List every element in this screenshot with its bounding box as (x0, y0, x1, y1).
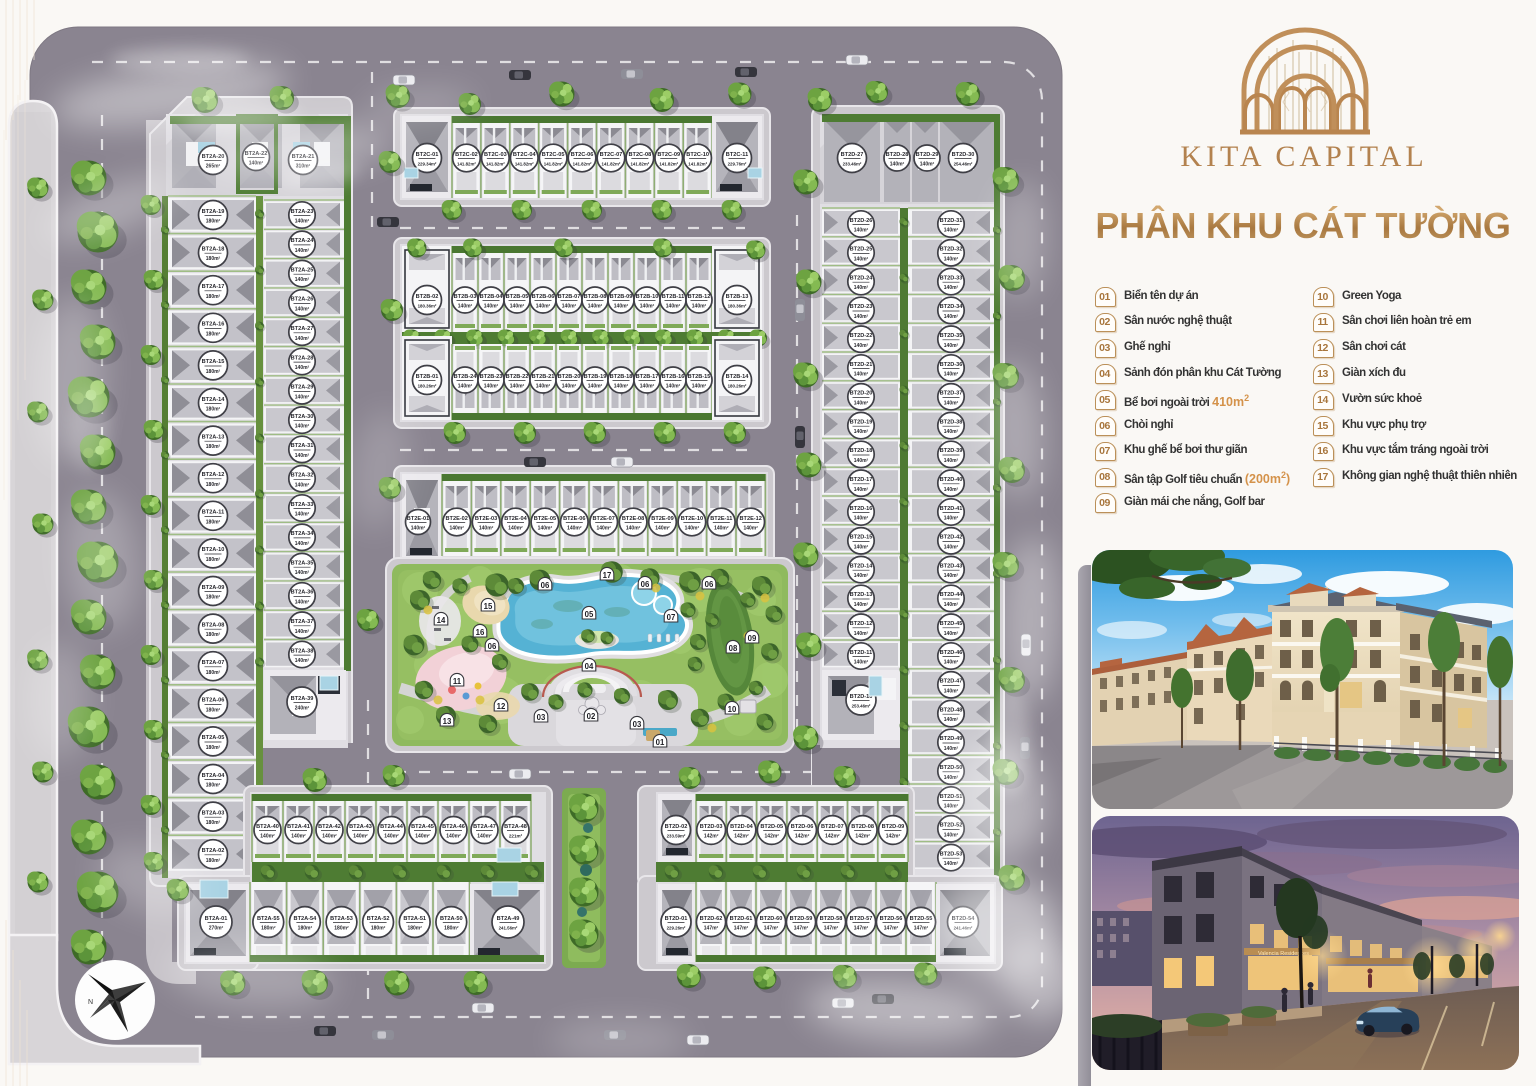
svg-text:BT2D-07: BT2D-07 (821, 824, 844, 830)
svg-text:140m²: 140m² (536, 384, 551, 390)
svg-text:BT2A-19: BT2A-19 (202, 209, 225, 215)
svg-text:BT2B-12: BT2B-12 (688, 294, 711, 300)
svg-text:BT2B-10: BT2B-10 (636, 294, 659, 300)
svg-text:BT2D-05: BT2D-05 (760, 824, 783, 830)
svg-text:BT2C-10: BT2C-10 (686, 152, 709, 158)
svg-text:05: 05 (585, 610, 594, 619)
svg-text:140m²: 140m² (291, 834, 306, 840)
svg-text:13: 13 (443, 717, 452, 726)
svg-text:BT2B-11: BT2B-11 (662, 294, 684, 300)
svg-text:BT2B-01: BT2B-01 (416, 374, 439, 380)
svg-text:142m²: 142m² (825, 834, 840, 840)
svg-text:BT2A-41: BT2A-41 (287, 824, 310, 830)
svg-text:03: 03 (633, 720, 642, 729)
svg-text:BT2D-30: BT2D-30 (952, 152, 975, 158)
svg-text:BT2D-61: BT2D-61 (730, 916, 753, 922)
svg-text:BT2D-18: BT2D-18 (850, 448, 873, 454)
svg-text:BT2D-14: BT2D-14 (850, 563, 874, 569)
svg-text:BT2C-01: BT2C-01 (416, 152, 439, 158)
svg-text:BT2A-02: BT2A-02 (202, 848, 225, 854)
svg-text:BT2B-17: BT2B-17 (636, 374, 659, 380)
svg-text:140m²: 140m² (944, 343, 959, 349)
svg-text:140m²: 140m² (854, 256, 869, 262)
svg-text:BT2D-44: BT2D-44 (940, 592, 964, 598)
svg-text:BT2E-09: BT2E-09 (651, 516, 673, 522)
svg-text:BT2E-06: BT2E-06 (563, 516, 585, 522)
svg-text:147m²: 147m² (854, 926, 869, 932)
svg-text:142m²: 142m² (704, 834, 719, 840)
svg-text:BT2D-24: BT2D-24 (850, 275, 874, 281)
svg-text:140m²: 140m² (944, 861, 959, 867)
svg-text:BT2B-16: BT2B-16 (662, 374, 685, 380)
svg-text:147m²: 147m² (734, 926, 749, 932)
svg-text:10: 10 (728, 705, 737, 714)
svg-text:140m²: 140m² (295, 570, 310, 576)
svg-text:08: 08 (729, 644, 738, 653)
svg-text:BT2A-54: BT2A-54 (294, 916, 318, 922)
svg-text:140m²: 140m² (854, 429, 869, 435)
svg-text:140m²: 140m² (944, 660, 959, 666)
svg-text:140m²: 140m² (536, 304, 551, 310)
svg-text:BT2B-05: BT2B-05 (506, 294, 529, 300)
svg-text:BT2D-46: BT2D-46 (940, 650, 963, 656)
svg-text:BT2D-57: BT2D-57 (850, 916, 873, 922)
svg-text:BT2C-11: BT2C-11 (726, 152, 748, 158)
svg-text:140m²: 140m² (944, 372, 959, 378)
svg-text:141.82m²: 141.82m² (630, 162, 649, 167)
svg-text:BT2C-03: BT2C-03 (484, 152, 507, 158)
svg-text:BT2A-03: BT2A-03 (202, 810, 225, 816)
svg-text:BT2D-09: BT2D-09 (882, 824, 905, 830)
svg-text:06: 06 (541, 581, 550, 590)
svg-text:BT2E-07: BT2E-07 (593, 516, 615, 522)
svg-text:BT2D-62: BT2D-62 (700, 916, 723, 922)
svg-text:142m²: 142m² (886, 834, 901, 840)
svg-text:06: 06 (488, 642, 497, 651)
svg-text:180.36m²: 180.36m² (418, 304, 437, 309)
svg-text:180m²: 180m² (334, 926, 349, 932)
svg-text:140m²: 140m² (295, 277, 310, 283)
svg-text:140m²: 140m² (944, 631, 959, 637)
svg-text:BT2D-37: BT2D-37 (940, 391, 963, 397)
svg-text:140m²: 140m² (295, 219, 310, 225)
svg-text:BT2A-29: BT2A-29 (291, 385, 314, 391)
svg-text:140m²: 140m² (890, 162, 905, 168)
svg-text:140m²: 140m² (944, 256, 959, 262)
svg-text:142m²: 142m² (855, 834, 870, 840)
svg-text:BT2B-02: BT2B-02 (416, 294, 439, 300)
svg-text:BT2A-51: BT2A-51 (403, 916, 426, 922)
svg-text:BT2B-09: BT2B-09 (610, 294, 633, 300)
svg-text:BT2D-29: BT2D-29 (916, 152, 939, 158)
svg-text:BT2D-32: BT2D-32 (940, 247, 963, 253)
svg-text:BT2E-12: BT2E-12 (740, 516, 762, 522)
svg-text:BT2A-28: BT2A-28 (291, 355, 314, 361)
svg-text:BT2A-05: BT2A-05 (202, 735, 225, 741)
svg-text:140m²: 140m² (484, 384, 499, 390)
svg-text:06: 06 (641, 580, 650, 589)
svg-text:15: 15 (484, 602, 493, 611)
svg-text:BT2D-35: BT2D-35 (940, 333, 963, 339)
svg-text:140m²: 140m² (295, 365, 310, 371)
svg-text:229.26m²: 229.26m² (667, 926, 686, 931)
svg-text:BT2A-26: BT2A-26 (291, 297, 314, 303)
svg-text:BT2A-40: BT2A-40 (256, 824, 279, 830)
svg-text:140m²: 140m² (384, 834, 399, 840)
svg-text:BT2D-01: BT2D-01 (665, 916, 688, 922)
svg-text:03: 03 (537, 713, 546, 722)
svg-text:BT2B-03: BT2B-03 (454, 294, 477, 300)
svg-text:140m²: 140m² (260, 834, 275, 840)
svg-text:180m²: 180m² (206, 820, 221, 826)
svg-text:180m²: 180m² (206, 783, 221, 789)
svg-text:BT2B-06: BT2B-06 (532, 294, 555, 300)
svg-text:BT2A-23: BT2A-23 (291, 209, 314, 215)
svg-text:140m²: 140m² (854, 285, 869, 291)
svg-text:141.82m²: 141.82m² (457, 162, 476, 167)
svg-text:BT2D-60: BT2D-60 (760, 916, 783, 922)
svg-text:BT2A-30: BT2A-30 (291, 414, 314, 420)
svg-text:140m²: 140m² (854, 544, 869, 550)
svg-text:BT2D-20: BT2D-20 (850, 391, 873, 397)
svg-text:BT2D-40: BT2D-40 (940, 477, 963, 483)
svg-text:140m²: 140m² (479, 526, 494, 532)
svg-text:140m²: 140m² (854, 314, 869, 320)
svg-text:BT2A-33: BT2A-33 (291, 502, 314, 508)
svg-text:140m²: 140m² (944, 285, 959, 291)
svg-text:BT2D-21: BT2D-21 (850, 362, 873, 368)
svg-text:BT2D-16: BT2D-16 (850, 506, 873, 512)
svg-text:BT2D-42: BT2D-42 (940, 535, 963, 541)
svg-text:BT2A-14: BT2A-14 (202, 397, 226, 403)
svg-text:180.36m²: 180.36m² (728, 304, 747, 309)
svg-text:BT2E-10: BT2E-10 (681, 516, 703, 522)
svg-text:140m²: 140m² (854, 516, 869, 522)
svg-text:140m²: 140m² (854, 573, 869, 579)
svg-text:BT2A-15: BT2A-15 (202, 359, 225, 365)
svg-text:BT2A-39: BT2A-39 (291, 696, 314, 702)
svg-text:BT2E-05: BT2E-05 (534, 516, 556, 522)
svg-text:140m²: 140m² (854, 487, 869, 493)
svg-text:BT2A-16: BT2A-16 (202, 322, 225, 328)
svg-text:140m²: 140m² (295, 336, 310, 342)
svg-text:BT2B-04: BT2B-04 (480, 294, 504, 300)
svg-text:140m²: 140m² (944, 602, 959, 608)
svg-text:BT2B-08: BT2B-08 (584, 294, 607, 300)
svg-text:BT2D-52: BT2D-52 (940, 823, 963, 829)
svg-text:BT2D-39: BT2D-39 (940, 448, 963, 454)
svg-text:BT2D-53: BT2D-53 (940, 851, 963, 857)
svg-text:140m²: 140m² (944, 458, 959, 464)
svg-text:17: 17 (603, 571, 612, 580)
svg-text:BT2D-22: BT2D-22 (850, 333, 873, 339)
svg-text:233.59m²: 233.59m² (667, 834, 686, 839)
svg-text:BT2C-08: BT2C-08 (628, 152, 651, 158)
svg-text:140m²: 140m² (666, 384, 681, 390)
svg-text:140m²: 140m² (295, 600, 310, 606)
svg-text:140m²: 140m² (295, 512, 310, 518)
svg-text:140m²: 140m² (477, 834, 492, 840)
svg-text:254.46m²: 254.46m² (954, 162, 973, 167)
svg-text:140m²: 140m² (614, 304, 629, 310)
svg-text:140m²: 140m² (588, 384, 603, 390)
svg-text:140m²: 140m² (854, 400, 869, 406)
svg-text:241.56m²: 241.56m² (499, 926, 518, 931)
svg-text:140m²: 140m² (854, 343, 869, 349)
svg-text:140m²: 140m² (640, 304, 655, 310)
svg-text:BT2A-38: BT2A-38 (291, 648, 314, 654)
svg-text:140m²: 140m² (508, 526, 523, 532)
svg-text:180m²: 180m² (206, 294, 221, 300)
svg-text:180m²: 180m² (206, 482, 221, 488)
svg-text:180m²: 180m² (206, 369, 221, 375)
svg-text:140m²: 140m² (944, 832, 959, 838)
svg-text:147m²: 147m² (764, 926, 779, 932)
svg-text:BT2A-48: BT2A-48 (504, 824, 527, 830)
svg-text:BT2A-35: BT2A-35 (291, 560, 314, 566)
svg-text:N: N (88, 999, 93, 1006)
svg-text:233.46m²: 233.46m² (843, 162, 862, 167)
svg-text:140m²: 140m² (944, 573, 959, 579)
svg-text:BT2D-45: BT2D-45 (940, 621, 963, 627)
svg-text:140m²: 140m² (685, 526, 700, 532)
svg-text:BT2C-06: BT2C-06 (571, 152, 594, 158)
svg-text:BT2C-05: BT2C-05 (542, 152, 565, 158)
svg-text:229.76m²: 229.76m² (728, 162, 747, 167)
svg-text:BT2D-17: BT2D-17 (850, 477, 873, 483)
svg-text:140m²: 140m² (944, 314, 959, 320)
svg-text:BT2A-17: BT2A-17 (202, 284, 225, 290)
svg-text:BT2E-02: BT2E-02 (446, 516, 468, 522)
svg-text:BT2D-41: BT2D-41 (940, 506, 963, 512)
svg-text:BT2B-14: BT2B-14 (726, 374, 750, 380)
svg-text:141.82m²: 141.82m² (544, 162, 563, 167)
svg-text:BT2A-18: BT2A-18 (202, 246, 225, 252)
svg-text:140m²: 140m² (295, 453, 310, 459)
svg-text:16: 16 (476, 628, 485, 637)
svg-text:BT2C-07: BT2C-07 (600, 152, 623, 158)
svg-text:BT2D-26: BT2D-26 (850, 218, 873, 224)
svg-text:140m²: 140m² (295, 394, 310, 400)
svg-text:BT2A-04: BT2A-04 (202, 773, 226, 779)
svg-text:140m²: 140m² (692, 304, 707, 310)
svg-text:BT2B-20: BT2B-20 (558, 374, 581, 380)
svg-text:180m²: 180m² (371, 926, 386, 932)
svg-text:BT2A-09: BT2A-09 (202, 585, 225, 591)
svg-text:140m²: 140m² (567, 526, 582, 532)
svg-text:BT2A-49: BT2A-49 (497, 916, 520, 922)
svg-text:140m²: 140m² (588, 304, 603, 310)
svg-text:180m²: 180m² (298, 926, 313, 932)
svg-text:140m²: 140m² (944, 544, 959, 550)
svg-text:BT2D-23: BT2D-23 (850, 304, 873, 310)
svg-text:140m²: 140m² (666, 304, 681, 310)
svg-text:140m²: 140m² (626, 526, 641, 532)
svg-text:BT2A-37: BT2A-37 (291, 619, 314, 625)
svg-text:BT2D-47: BT2D-47 (940, 679, 963, 685)
svg-text:BT2B-19: BT2B-19 (584, 374, 607, 380)
svg-text:BT2A-44: BT2A-44 (380, 824, 404, 830)
svg-text:140m²: 140m² (562, 384, 577, 390)
svg-text:BT2A-10: BT2A-10 (202, 547, 225, 553)
svg-text:BT2A-53: BT2A-53 (330, 916, 353, 922)
svg-text:BT2D-31: BT2D-31 (940, 218, 963, 224)
svg-text:140m²: 140m² (538, 526, 553, 532)
svg-text:140m²: 140m² (743, 526, 758, 532)
svg-text:BT2D-03: BT2D-03 (700, 824, 723, 830)
svg-text:140m²: 140m² (854, 602, 869, 608)
svg-text:11: 11 (453, 677, 462, 686)
svg-text:140m²: 140m² (920, 162, 935, 168)
svg-text:BT2A-47: BT2A-47 (473, 824, 496, 830)
svg-text:BT2B-07: BT2B-07 (558, 294, 581, 300)
svg-text:240m²: 240m² (295, 706, 310, 712)
svg-text:140m²: 140m² (415, 834, 430, 840)
svg-text:140m²: 140m² (655, 526, 670, 532)
svg-text:BT2D-48: BT2D-48 (940, 707, 963, 713)
svg-text:180m²: 180m² (206, 407, 221, 413)
svg-text:BT2A-06: BT2A-06 (202, 698, 225, 704)
svg-text:140m²: 140m² (295, 541, 310, 547)
svg-text:BT2A-12: BT2A-12 (202, 472, 225, 478)
svg-text:140m²: 140m² (614, 384, 629, 390)
svg-text:01: 01 (656, 738, 665, 747)
svg-text:BT2D-36: BT2D-36 (940, 362, 963, 368)
svg-text:180m²: 180m² (206, 670, 221, 676)
svg-text:BT2C-02: BT2C-02 (455, 152, 478, 158)
svg-text:BT2C-04: BT2C-04 (513, 152, 537, 158)
svg-text:BT2A-24: BT2A-24 (291, 238, 315, 244)
svg-text:141.82m²: 141.82m² (515, 162, 534, 167)
svg-text:140m²: 140m² (854, 631, 869, 637)
svg-text:04: 04 (585, 662, 594, 671)
svg-text:BT2C-09: BT2C-09 (657, 152, 680, 158)
svg-text:180m²: 180m² (206, 632, 221, 638)
svg-text:147m²: 147m² (704, 926, 719, 932)
svg-text:140m²: 140m² (322, 834, 337, 840)
svg-text:142m²: 142m² (795, 834, 810, 840)
svg-text:180m²: 180m² (407, 926, 422, 932)
svg-text:BT2D-33: BT2D-33 (940, 275, 963, 281)
svg-text:140m²: 140m² (510, 384, 525, 390)
svg-text:141.82m²: 141.82m² (486, 162, 505, 167)
svg-text:147m²: 147m² (884, 926, 899, 932)
svg-text:BT2D-08: BT2D-08 (851, 824, 874, 830)
svg-text:BT2D-49: BT2D-49 (940, 736, 963, 742)
svg-text:BT2B-18: BT2B-18 (610, 374, 633, 380)
svg-text:BT2E-04: BT2E-04 (504, 516, 527, 522)
svg-text:140m²: 140m² (854, 458, 869, 464)
svg-text:BT2B-23: BT2B-23 (480, 374, 503, 380)
svg-text:BT2D-38: BT2D-38 (940, 419, 963, 425)
svg-text:BT2D-19: BT2D-19 (850, 419, 873, 425)
svg-text:BT2B-24: BT2B-24 (454, 374, 478, 380)
svg-text:BT2A-01: BT2A-01 (205, 916, 228, 922)
svg-text:BT2A-13: BT2A-13 (202, 434, 225, 440)
svg-text:BT2D-12: BT2D-12 (850, 621, 873, 627)
svg-text:180m²: 180m² (261, 926, 276, 932)
svg-text:BT2A-45: BT2A-45 (411, 824, 434, 830)
svg-text:09: 09 (748, 634, 757, 643)
svg-text:140m²: 140m² (714, 526, 729, 532)
svg-text:180.26m²: 180.26m² (728, 384, 747, 389)
svg-text:BT2E-11: BT2E-11 (710, 516, 732, 522)
svg-text:BT2D-27: BT2D-27 (841, 152, 864, 158)
svg-text:BT2D-02: BT2D-02 (665, 824, 688, 830)
svg-text:142m²: 142m² (734, 834, 749, 840)
svg-text:BT2A-32: BT2A-32 (291, 473, 314, 479)
svg-text:180m²: 180m² (206, 745, 221, 751)
svg-text:BT2E-08: BT2E-08 (622, 516, 644, 522)
svg-text:180m²: 180m² (206, 707, 221, 713)
svg-text:270m²: 270m² (209, 926, 224, 932)
svg-text:BT2D-06: BT2D-06 (791, 824, 814, 830)
svg-text:140m²: 140m² (295, 248, 310, 254)
svg-text:147m²: 147m² (914, 926, 929, 932)
svg-text:141.82m²: 141.82m² (659, 162, 678, 167)
svg-text:140m²: 140m² (446, 834, 461, 840)
svg-text:BT2D-58: BT2D-58 (820, 916, 843, 922)
svg-text:BT2E-01: BT2E-01 (407, 516, 429, 522)
svg-text:BT2D-28: BT2D-28 (886, 152, 909, 158)
svg-text:180m²: 180m² (206, 256, 221, 262)
svg-text:BT2A-34: BT2A-34 (291, 531, 315, 537)
svg-text:BT2D-55: BT2D-55 (910, 916, 933, 922)
svg-text:140m²: 140m² (295, 307, 310, 313)
svg-text:140m²: 140m² (944, 400, 959, 406)
svg-text:140m²: 140m² (944, 487, 959, 493)
svg-text:140m²: 140m² (944, 429, 959, 435)
svg-text:BT2D-15: BT2D-15 (850, 535, 873, 541)
svg-text:140m²: 140m² (458, 384, 473, 390)
svg-text:140m²: 140m² (295, 629, 310, 635)
svg-text:140m²: 140m² (484, 304, 499, 310)
svg-text:BT2A-36: BT2A-36 (291, 590, 314, 596)
svg-text:140m²: 140m² (944, 746, 959, 752)
svg-text:180m²: 180m² (206, 444, 221, 450)
svg-text:140m²: 140m² (295, 658, 310, 664)
svg-text:140m²: 140m² (353, 834, 368, 840)
svg-text:BT2B-21: BT2B-21 (532, 374, 555, 380)
svg-text:BT2A-46: BT2A-46 (442, 824, 465, 830)
svg-text:BT2D-43: BT2D-43 (940, 563, 963, 569)
svg-text:180m²: 180m² (206, 331, 221, 337)
svg-text:BT2B-22: BT2B-22 (506, 374, 529, 380)
svg-text:BT2B-13: BT2B-13 (726, 294, 749, 300)
svg-text:180m²: 180m² (206, 557, 221, 563)
svg-text:147m²: 147m² (824, 926, 839, 932)
svg-text:BT2A-27: BT2A-27 (291, 326, 314, 332)
svg-text:BT2A-25: BT2A-25 (291, 267, 314, 273)
svg-text:140m²: 140m² (944, 516, 959, 522)
svg-text:BT2D-04: BT2D-04 (730, 824, 754, 830)
svg-text:253.46m²: 253.46m² (852, 704, 871, 709)
svg-text:12: 12 (497, 702, 506, 711)
svg-text:BT2D-56: BT2D-56 (880, 916, 903, 922)
svg-text:BT2D-25: BT2D-25 (850, 247, 873, 253)
svg-text:14: 14 (437, 616, 446, 625)
svg-text:BT2D-50: BT2D-50 (940, 765, 963, 771)
svg-text:141.82m²: 141.82m² (688, 162, 707, 167)
svg-text:BT2A-11: BT2A-11 (202, 510, 224, 516)
svg-text:180m²: 180m² (206, 519, 221, 525)
svg-text:140m²: 140m² (411, 526, 426, 532)
svg-text:140m²: 140m² (295, 424, 310, 430)
svg-text:140m²: 140m² (944, 228, 959, 234)
svg-text:BT2A-42: BT2A-42 (318, 824, 341, 830)
svg-text:BT2D-13: BT2D-13 (850, 592, 873, 598)
svg-text:140m²: 140m² (449, 526, 464, 532)
